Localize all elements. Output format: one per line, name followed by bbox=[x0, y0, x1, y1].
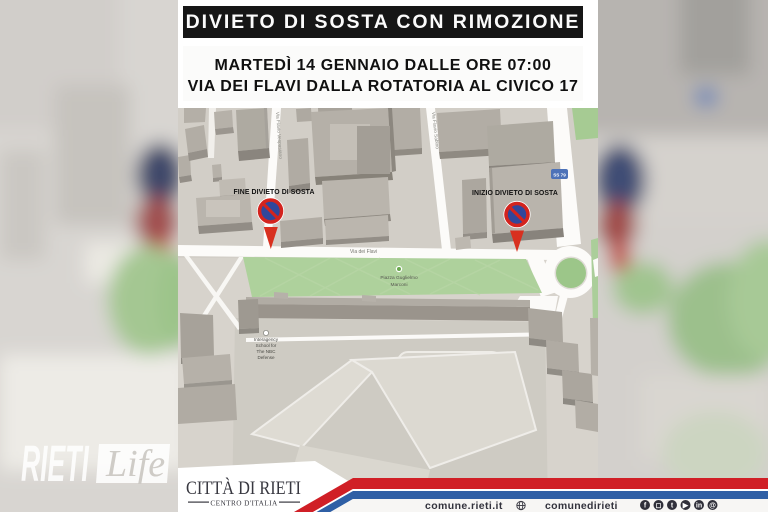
svg-text:comune.rieti.it: comune.rieti.it bbox=[425, 500, 503, 512]
svg-text:CITTÀ DI RIETI: CITTÀ DI RIETI bbox=[186, 477, 301, 499]
svg-text:CENTRO D'ITALIA: CENTRO D'ITALIA bbox=[210, 499, 278, 508]
svg-text:comunedirieti: comunedirieti bbox=[545, 500, 618, 512]
svg-text:◻: ◻ bbox=[656, 503, 662, 510]
svg-text:Life: Life bbox=[105, 443, 165, 485]
svg-text:▶: ▶ bbox=[682, 503, 689, 510]
svg-text:in: in bbox=[696, 503, 702, 510]
svg-text:RIETI: RIETI bbox=[21, 435, 89, 493]
svg-text:@: @ bbox=[709, 503, 716, 510]
